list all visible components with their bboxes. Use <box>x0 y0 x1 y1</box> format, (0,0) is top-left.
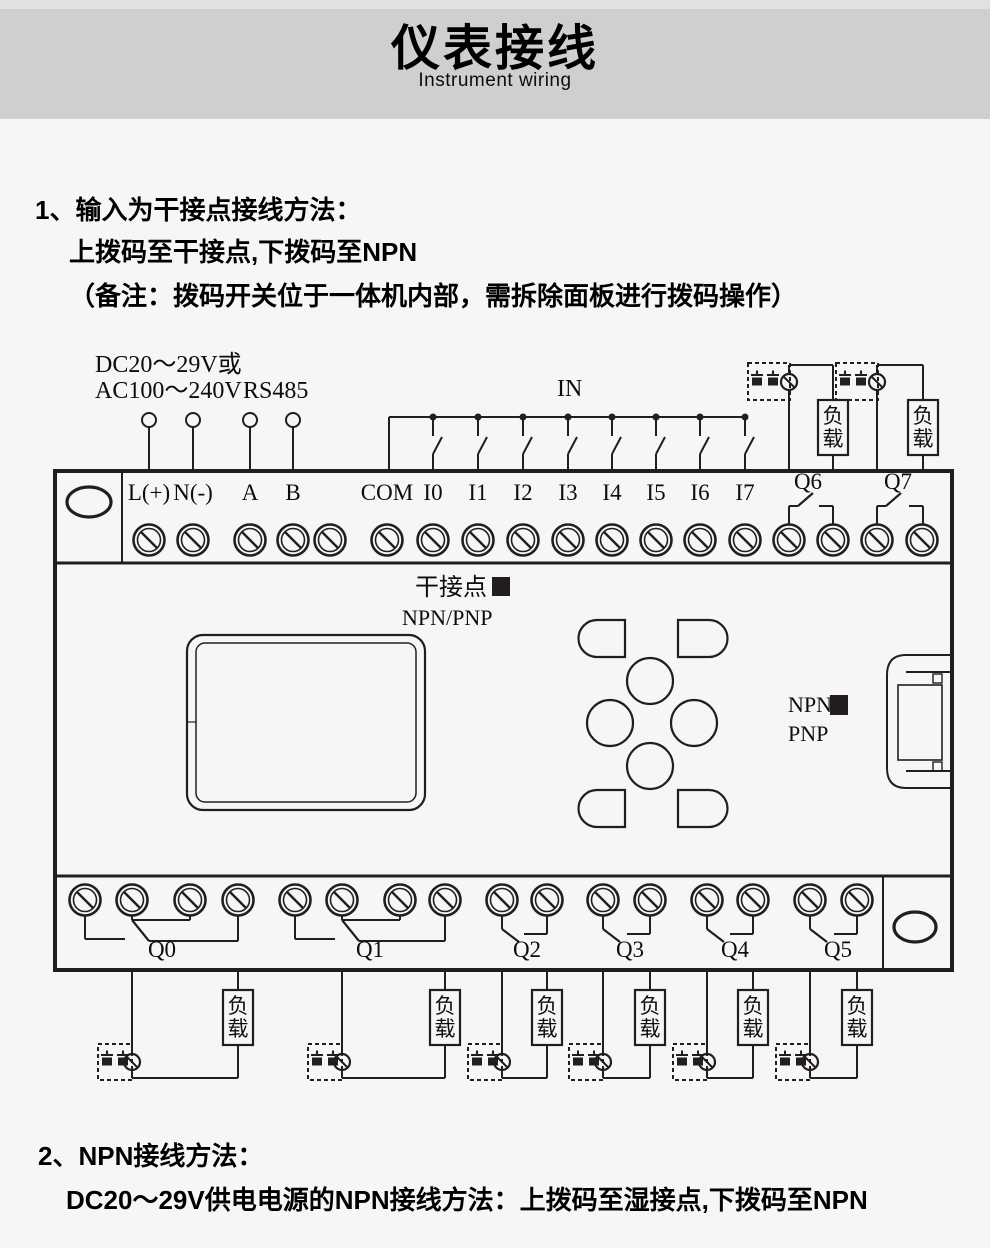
power-spec-label-line2: AC100～240V <box>95 378 242 404</box>
capacitor-icon <box>312 1058 322 1066</box>
terminal-screw-slot <box>124 892 140 908</box>
load-label: 载 <box>823 427 844 451</box>
load-label: 载 <box>228 1017 249 1041</box>
section1-note: （备注：拨码开关位于一体机内部，需拆除面板进行拨码操作） <box>69 276 797 313</box>
terminal-screw-slot <box>737 532 753 548</box>
input-switch-blade <box>523 437 532 454</box>
key-right <box>671 700 717 746</box>
load-label: 负 <box>435 994 456 1018</box>
terminal-screw-slot <box>781 532 797 548</box>
mounting-slot-top-left <box>67 487 111 517</box>
terminal-screw-slot <box>230 892 246 908</box>
terminal-screw-slot <box>604 532 620 548</box>
capacitor-icon <box>768 378 778 386</box>
output-label: Q2 <box>513 937 541 962</box>
side-connector <box>887 655 952 788</box>
terminal-label: N(-) <box>173 480 213 505</box>
load-label: 载 <box>537 1017 558 1041</box>
input-switch-blade <box>700 437 709 454</box>
terminal-label: I7 <box>735 480 754 505</box>
output-label: Q5 <box>824 937 852 962</box>
output-label: Q0 <box>148 937 176 962</box>
power-terminals <box>142 413 300 471</box>
key-down <box>627 743 673 789</box>
connector-inner-slot <box>898 685 942 760</box>
wiring-schematic: DC20～29V或 AC100～240V RS485 IN 干接点 NPN/PN… <box>0 330 990 1100</box>
section1-line2: 上拨码至干接点,下拨码至NPN <box>69 232 417 269</box>
relay-contact-blade <box>886 493 901 506</box>
section2-heading: 2、NPN接线方法： <box>38 1136 263 1173</box>
capacitor-icon <box>118 1058 128 1066</box>
terminal-screw-slot <box>539 892 555 908</box>
key-bottom-right <box>678 790 728 827</box>
load-label: 载 <box>640 1017 661 1041</box>
terminal-screw-slot <box>802 892 818 908</box>
terminal-label: I1 <box>468 480 487 505</box>
load-label: 负 <box>847 994 868 1018</box>
terminal-screw-slot <box>285 532 301 548</box>
terminal-label: L(+) <box>128 480 170 505</box>
load-label: 载 <box>847 1017 868 1041</box>
load-label: 负 <box>640 994 661 1018</box>
capacitor-icon <box>840 378 850 386</box>
rs485-label: RS485 <box>243 378 308 404</box>
pnp-label: PNP <box>788 721 828 746</box>
mounting-slot-bottom-right <box>894 912 936 942</box>
connector-key-tab <box>933 762 942 771</box>
header-banner: 仪表接线 Instrument wiring <box>0 9 990 119</box>
relay-contact-blade <box>132 920 149 941</box>
terminal-label: B <box>285 480 300 505</box>
page-subtitle: Instrument wiring <box>0 70 990 92</box>
capacitor-icon <box>752 378 762 386</box>
terminal-screw-slot <box>849 892 865 908</box>
load-label: 负 <box>913 404 934 428</box>
terminal-label: I4 <box>602 480 622 505</box>
dry-contact-dip-square <box>492 577 510 596</box>
terminal-screw-slot <box>425 532 441 548</box>
lcd-outer-bezel <box>187 635 425 810</box>
terminal-screw-slot <box>242 532 258 548</box>
output-label: Q4 <box>721 937 750 962</box>
capacitor-icon <box>102 1058 112 1066</box>
terminal-screw-slot <box>560 532 576 548</box>
terminal-label: I5 <box>646 480 665 505</box>
terminal-screw-slot <box>494 892 510 908</box>
terminal-screw-slot <box>287 892 303 908</box>
capacitor-icon <box>856 378 866 386</box>
load-label: 载 <box>743 1017 764 1041</box>
key-bottom-left <box>579 790 626 827</box>
terminal-screw-slot <box>648 532 664 548</box>
top-strip <box>0 0 990 9</box>
terminal-screw-slot <box>185 532 201 548</box>
output-label: Q6 <box>794 469 822 494</box>
load-label: 负 <box>537 994 558 1018</box>
terminal-screw-slot <box>392 892 408 908</box>
load-label: 负 <box>743 994 764 1018</box>
terminal-screw-slot <box>437 892 453 908</box>
output-label: Q1 <box>356 937 384 962</box>
key-left <box>587 700 633 746</box>
capacitor-icon <box>796 1058 806 1066</box>
key-top-left <box>579 620 626 657</box>
terminal-label: COM <box>361 480 413 505</box>
terminal-label: I6 <box>690 480 709 505</box>
page: 仪表接线 Instrument wiring 1、输入为干接点接线方法： 上拨码… <box>0 0 990 1248</box>
terminal-screw-slot <box>515 532 531 548</box>
capacitor-icon <box>693 1058 703 1066</box>
input-switch-blade <box>656 437 665 454</box>
terminal-label: I3 <box>558 480 577 505</box>
output-label: Q7 <box>884 469 912 494</box>
terminal-screw-slot <box>699 892 715 908</box>
key-up <box>627 658 673 704</box>
terminal-screw-slot <box>77 892 93 908</box>
rs485-terminal-circle <box>286 413 300 427</box>
terminal-screw-slot <box>642 892 658 908</box>
power-spec-label-line1: DC20～29V或 <box>95 351 242 378</box>
rs485-terminal-circle <box>243 413 257 427</box>
terminal-screw-slot <box>595 892 611 908</box>
terminal-label: A <box>242 480 259 505</box>
connector-key-tab <box>933 674 942 683</box>
terminal-screw-slot <box>379 532 395 548</box>
capacitor-icon <box>488 1058 498 1066</box>
terminal-label: I0 <box>423 480 442 505</box>
section1-heading: 1、输入为干接点接线方法： <box>35 190 361 227</box>
capacitor-icon <box>328 1058 338 1066</box>
terminal-screw-slot <box>141 532 157 548</box>
terminal-screw-slot <box>825 532 841 548</box>
capacitor-icon <box>589 1058 599 1066</box>
load-label: 载 <box>435 1017 456 1041</box>
key-top-right <box>678 620 728 657</box>
capacitor-icon <box>677 1058 687 1066</box>
load-label: 载 <box>913 427 934 451</box>
lcd-display <box>187 635 425 810</box>
terminal-screw-slot <box>334 892 350 908</box>
terminal-screw-slot <box>470 532 486 548</box>
terminal-screw-slot <box>692 532 708 548</box>
power-terminal-circle <box>142 413 156 427</box>
capacitor-icon <box>472 1058 482 1066</box>
relay-contact-blade <box>798 493 813 506</box>
terminal-screw-slot <box>914 532 930 548</box>
lcd-inner-screen <box>196 643 416 802</box>
terminal-screw-slot <box>869 532 885 548</box>
input-switch-blade <box>612 437 621 454</box>
terminal-label: I2 <box>513 480 532 505</box>
terminal-screw-slot <box>745 892 761 908</box>
power-terminal-circle <box>186 413 200 427</box>
input-switch-blade <box>745 437 754 454</box>
npn-pnp-label: NPN/PNP <box>402 605 492 630</box>
page-title: 仪表接线 <box>0 9 990 74</box>
input-switch-blade <box>478 437 487 454</box>
load-label: 负 <box>228 994 249 1018</box>
terminal-screw-slot <box>322 532 338 548</box>
dry-contact-label: 干接点 <box>415 574 487 601</box>
capacitor-icon <box>780 1058 790 1066</box>
in-label: IN <box>557 376 582 402</box>
input-switch-blade <box>568 437 577 454</box>
load-label: 负 <box>823 404 844 428</box>
keypad <box>579 620 728 827</box>
terminal-screw-slot <box>182 892 198 908</box>
input-switch-blade <box>433 437 442 454</box>
output-label: Q3 <box>616 937 644 962</box>
npn-dip-square <box>830 695 848 715</box>
npn-label: NPN <box>788 692 832 717</box>
capacitor-icon <box>573 1058 583 1066</box>
section2-line2: DC20～29V供电电源的NPN接线方法：上拨码至湿接点,下拨码至NPN <box>66 1180 868 1217</box>
